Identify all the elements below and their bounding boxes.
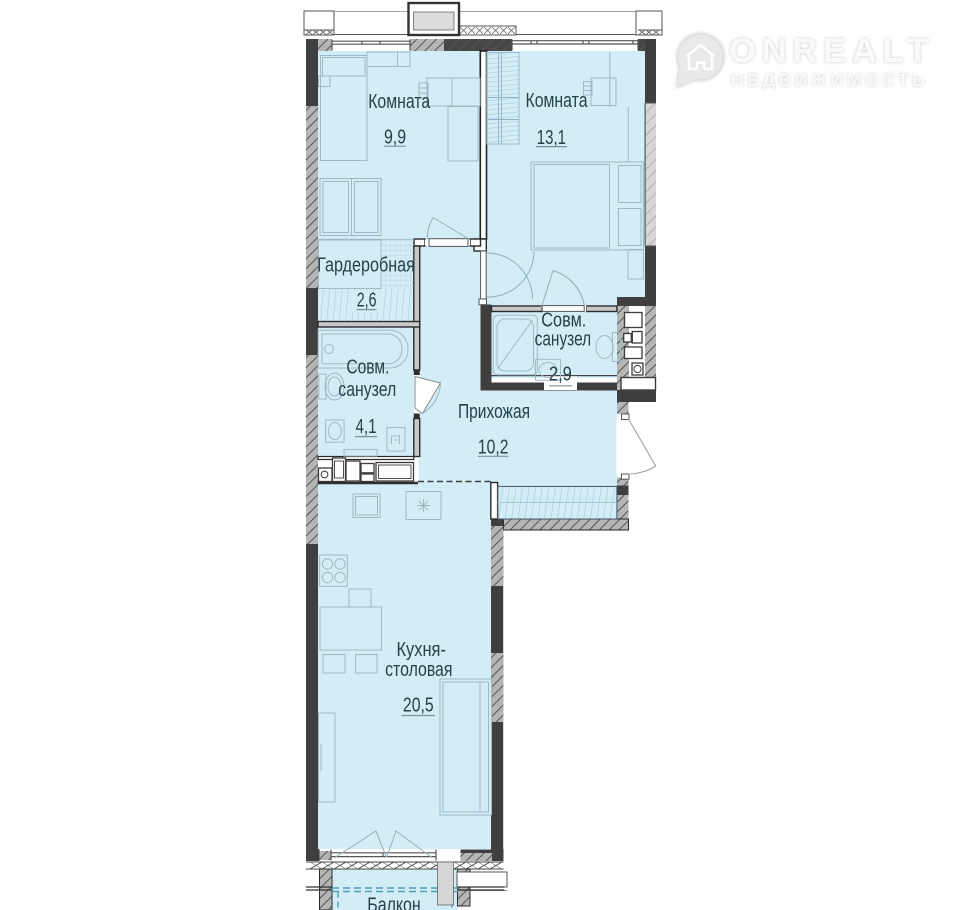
svg-text:Балкон: Балкон xyxy=(367,895,420,910)
svg-text:Комната: Комната xyxy=(526,90,589,112)
svg-text:санузел: санузел xyxy=(535,329,592,351)
svg-text:Кухня-: Кухня- xyxy=(396,639,446,661)
svg-text:НЕДВИЖИМОСТЬ: НЕДВИЖИМОСТЬ xyxy=(731,70,928,90)
svg-text:Гардеробная: Гардеробная xyxy=(317,254,415,276)
svg-text:санузел: санузел xyxy=(338,379,396,401)
svg-text:9,9: 9,9 xyxy=(384,126,406,148)
svg-text:10,2: 10,2 xyxy=(478,437,509,459)
svg-text:Прихожая: Прихожая xyxy=(458,401,530,423)
svg-text:20,5: 20,5 xyxy=(403,695,434,717)
svg-text:13,1: 13,1 xyxy=(537,127,566,149)
svg-text:ONREALT: ONREALT xyxy=(729,32,934,70)
svg-text:Комната: Комната xyxy=(368,91,431,113)
svg-text:2,9: 2,9 xyxy=(549,364,572,386)
svg-text:Совм.: Совм. xyxy=(346,357,389,379)
svg-text:4,1: 4,1 xyxy=(355,416,376,438)
svg-text:2,6: 2,6 xyxy=(357,290,377,312)
svg-text:столовая: столовая xyxy=(385,659,452,681)
